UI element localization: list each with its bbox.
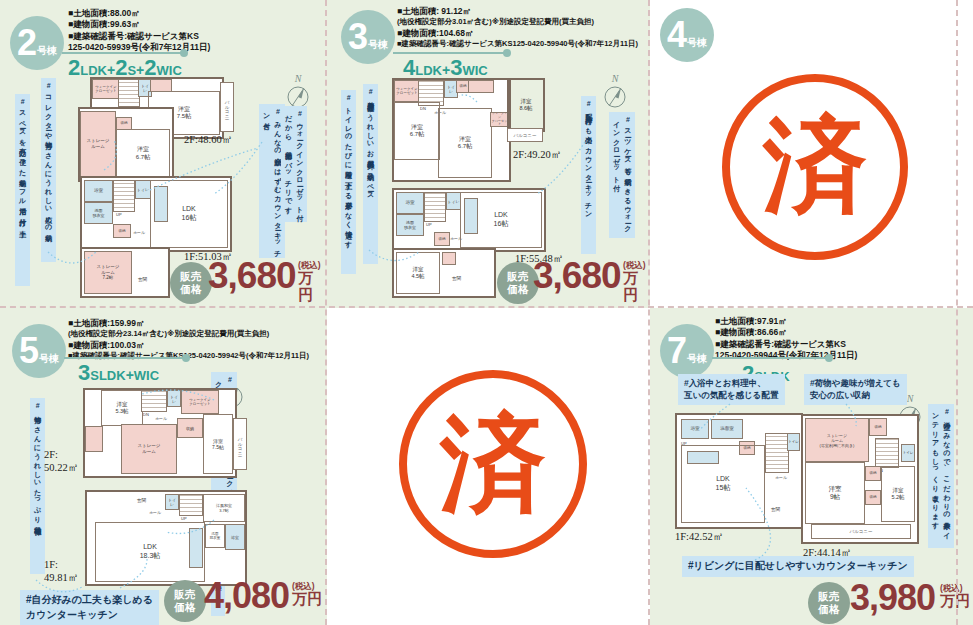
unit7-floorplan-1f: 浴室 洗面室 UP 収納 トイレ ホール LDK 15帖 玄関 (675, 413, 803, 529)
hashtag-note: #荷物や趣味が増えても 安心の広い収納 (804, 374, 907, 405)
kitchen-counter (464, 198, 478, 234)
unit3-specs: ■土地面積: 91.12㎡ (地役権設定部分3.01㎡含む)※別途設定登記費用(… (397, 6, 638, 49)
unit-number-suffix: 号棟 (368, 40, 388, 50)
layout-rooms: LDK (80, 63, 107, 78)
spec-line: ■建物面積:86.66㎡ (715, 327, 857, 338)
unit5-floorplan-type: 3SLDK+WIC (78, 362, 159, 384)
room-washroom: 洗面 脱衣室 (84, 202, 113, 224)
unit-number-suffix: 号棟 (687, 38, 707, 48)
room-storage: ストレージ ルーム (居室利用に不向き) (805, 418, 869, 462)
connector-dot (180, 49, 188, 57)
unit7-section: 7 号棟 ■土地面積:97.91㎡ ■建物面積:86.66㎡ ■建築確認番号:確… (650, 308, 973, 625)
unit2-floorplan-2f-lower: ストレージ ルーム 収納 洋室 6.7帖 (78, 107, 174, 182)
room-toilet: トイレ (165, 494, 179, 510)
hashtag-note: #入浴中とお料理中、 互いの気配を感じる配置 (678, 374, 785, 405)
room-bath: 浴室 (681, 419, 709, 439)
unit3-floorplan-2f: ウォークイン クローゼット トイレ 収納 DN ホール 洋室 6.7帖 洋室 6… (392, 78, 511, 182)
unit2-section: 2 号棟 ■土地面積:88.00㎡ ■建物面積:99.63㎡ ■建築確認番号:確… (0, 0, 327, 308)
spec-line: (地役権設定部分23.14㎡含む)※別途設定登記費用(買主負担) (68, 329, 309, 339)
stairs-up-label: UP (426, 222, 432, 227)
layout-rooms: SLDK (90, 368, 125, 383)
entrance-label: 玄関 (771, 507, 780, 513)
room-closet: 収納 (869, 418, 887, 436)
room-bedroom: 洋室 7.5帖 (203, 414, 233, 474)
unit5-number-badge: 5 号棟 (12, 324, 66, 378)
layout-rooms: LDK (415, 63, 442, 78)
room-closet: 収納 (865, 466, 881, 481)
hall-label: ホール (775, 475, 787, 480)
unit-number: 7 (667, 333, 687, 369)
room-bath: 浴室 (396, 192, 424, 214)
room-closet: 収納 (177, 418, 203, 438)
price-unit: 万円 (940, 593, 970, 610)
sold-stamp: 済 (399, 370, 587, 558)
hashtag-note: #物持ちさんにうれしいたっぷり収納確保 (30, 398, 45, 574)
room-toilet: トイレ (135, 180, 151, 199)
room-bedroom: 洋室 5.2帖 (881, 466, 915, 522)
sold-stamp-character: 済 (440, 393, 546, 536)
hashtag-note: #トイレのたびに階段を上下する必要がなく快適です (341, 90, 356, 274)
layout-rooms: S (127, 63, 136, 78)
badge-connector-line (62, 52, 182, 54)
compass-needle (602, 84, 628, 110)
spec-line: ■建物面積:99.63㎡ (68, 19, 210, 30)
unit3-floorplan-1f: 浴室 UP トイレ 洗面 脱衣室 収納 ホール LDK 16帖 (392, 188, 546, 252)
hashtag-note: #コレクターや物持ちさんにうれしい広めの収納 (41, 78, 56, 262)
hashtag-note: #整理整頓にうれしいお部屋以外の収納スペース (363, 84, 378, 264)
room-walkin-closet: ウォークイン クローゼット (181, 390, 219, 414)
price-tax-unit: (税込) 万円 (623, 261, 650, 303)
unit-number-suffix: 号棟 (687, 354, 707, 364)
entrance-label: 玄関 (137, 498, 146, 504)
unit3-section: 3 号棟 ■土地面積: 91.12㎡ (地役権設定部分3.01㎡含む)※別途設定… (327, 0, 650, 308)
entrance-label: 玄関 (138, 277, 147, 283)
room-toilet: トイレ (901, 444, 915, 462)
room-walkin-closet: ウォークイン クローゼット (92, 79, 120, 99)
room-toilet: トイレ (167, 390, 181, 407)
sale-price-badge: 販売 価格 (170, 262, 212, 304)
unit5-floorplan-2f: 洋室 5.3帖 DN トイレ ウォークイン クローゼット ホール ストレージ ル… (83, 388, 237, 478)
floor-area-label: 2F:49.20㎡ (513, 148, 561, 161)
room-bedroom: 洋室 6.7帖 (438, 108, 492, 178)
hashtag-note: #洋室のみなので、こだわりの家具やインテリアもしっくり収まります (928, 404, 954, 548)
price-unit: 万円 (292, 591, 322, 608)
kitchen-counter (189, 528, 203, 568)
balcony: バルコニー (507, 128, 543, 142)
price-tax-unit: (税込) 万円 (298, 261, 327, 303)
unit7-specs: ■土地面積:97.91㎡ ■建物面積:86.66㎡ ■建築確認番号:確認サービス… (715, 316, 857, 362)
room-walkin-closet (468, 80, 494, 93)
price-amount: 3,980 (850, 580, 935, 616)
spec-line: ■建物面積:100.03㎡ (68, 340, 309, 351)
unit-number: 2 (17, 25, 37, 61)
spec-line: ■土地面積: 91.12㎡ (397, 6, 638, 17)
floor-area-label: 2F: 50.22㎡ (44, 448, 78, 474)
unit3-floorplan-type: 4LDK+3WIC (403, 57, 488, 79)
plus-sign: + (442, 62, 450, 78)
floor-area-label: 2F:48.60㎡ (184, 133, 232, 146)
unit5-floorplan-1f: 玄関 トイレ UP ホール 洋風和室 3.7帖 LDK 18.3帖 洗面 脱衣室… (85, 490, 247, 586)
unit-number: 4 (667, 17, 687, 53)
connector-dot (182, 354, 190, 362)
badge-connector-line (712, 357, 827, 359)
floor-area-label: 1F: 49.81㎡ (44, 558, 78, 584)
unit2-number-badge: 2 号棟 (10, 16, 64, 70)
sale-price-badge: 販売 価格 (808, 582, 850, 624)
room-washroom: 洗面室 (711, 419, 743, 439)
compass-icon: N (601, 74, 629, 114)
unit2-floorplan-1f-lower: ストレージ ルーム 7.2帖 玄関 (80, 247, 170, 298)
spec-line: (地役権設定部分3.01㎡含む)※別途設定登記費用(買主負担) (397, 17, 638, 27)
room-toilet: トイレ (787, 433, 800, 451)
unit-number-suffix: 号棟 (37, 46, 57, 56)
hall-label: ホール (149, 510, 161, 515)
layout-count: 3 (78, 360, 90, 385)
stairs-down-label: DN (143, 412, 149, 417)
price-amount: 3,680 (533, 257, 621, 294)
stairs-up-label: UP (181, 516, 187, 521)
balcony: バルコニー (220, 82, 234, 132)
room-storage: ストレージ ルーム (80, 111, 116, 177)
floor-area-label: 2F:44.14㎡ (803, 546, 851, 559)
stairs-up-label: UP (116, 212, 122, 217)
badge-connector-line (64, 357, 184, 359)
room-closet: 収納 (113, 224, 131, 238)
balcony: バルコニー (811, 524, 911, 539)
sold-stamp-section: 済 (327, 308, 650, 625)
unit3-number-badge: 3 号棟 (341, 10, 395, 64)
stairs (113, 180, 135, 212)
unit-number: 5 (19, 333, 39, 369)
room-washroom: 洗面 脱衣室 (205, 524, 225, 548)
entrance-label: 玄関 (452, 276, 461, 282)
room-bedroom: 洋室 4.5帖 (396, 252, 440, 294)
spec-line: ■建築確認番号:確認サービス第KS (715, 339, 857, 350)
stairs (141, 390, 167, 412)
property-flyer: { "plus": "+", "compass_n": "N", "stamp"… (0, 0, 973, 625)
stairs (424, 192, 446, 222)
unit2-floorplan-type: 2LDK+2S+2WIC (68, 57, 182, 79)
connector-dot (503, 49, 511, 57)
stairs (765, 433, 789, 473)
spec-line: ■建物面積:104.68㎡ (397, 28, 638, 39)
hashtag-note: #ウォークインクローゼット付だから、収納力はバッチリです (281, 106, 307, 222)
room-bath: 浴室 (225, 524, 245, 550)
spec-line: ■建築確認番号:確認サービス第KS125-0420-59940号(令和7年12月… (397, 39, 638, 49)
unit-number: 3 (348, 19, 368, 55)
room-closet (85, 426, 103, 452)
layout-count: 4 (403, 55, 415, 80)
spec-line: ■建築確認番号:確認サービス第KS (68, 31, 210, 42)
kitchen-counter (154, 186, 168, 222)
floor-area-label: 1F:42.52㎡ (675, 530, 723, 543)
room-closet: 収納 (865, 490, 881, 505)
unit2-floorplan-1f: 浴室 洗面 脱衣室 UP トイレ 収納 ホール LDK 16帖 (80, 176, 232, 252)
room-washroom: 洗面 脱衣室 (396, 214, 424, 236)
hall-label: ホール (133, 230, 145, 235)
stairs (875, 438, 899, 468)
price-tax-unit: (税込) 万円 (292, 582, 322, 608)
layout-rooms: WIC (462, 63, 487, 78)
price-amount: 4,080 (204, 578, 289, 614)
unit5-section: 5 号棟 ■土地面積:159.99㎡ (地役権設定部分23.14㎡含む)※別途設… (0, 308, 327, 625)
room-storage: ストレージ ルーム (121, 424, 177, 474)
price-unit: 万円 (623, 270, 650, 303)
spec-line: ■土地面積:88.00㎡ (68, 8, 210, 19)
plus-sign: + (107, 62, 115, 78)
layout-rooms: WIC (134, 368, 159, 383)
balcony: バルコニー (233, 418, 247, 470)
layout-rooms: WIC (157, 63, 182, 78)
room-bedroom: 洋室 9帖 (805, 462, 865, 524)
unit2-specs: ■土地面積:88.00㎡ ■建物面積:99.63㎡ ■建築確認番号:確認サービス… (68, 8, 210, 54)
layout-count: 2 (68, 55, 80, 80)
connector-dot (825, 354, 833, 362)
compass-north-label: N (284, 74, 312, 84)
hashtag-note: #スーツケース等も収納できるウォークインクローゼット付 (609, 112, 635, 238)
room-bedroom: 洋室 5.3帖 (101, 390, 143, 426)
room-bedroom: 洋室 6.7帖 (116, 129, 170, 178)
plus-sign: + (126, 367, 134, 383)
stairs (179, 494, 203, 516)
price-unit: 万円 (298, 270, 327, 303)
room-service-room: 洋風和室 3.7帖 (203, 494, 245, 522)
stairs (118, 79, 140, 107)
unit-number-suffix: 号棟 (39, 354, 59, 364)
sold-stamp: 済 (722, 74, 908, 260)
unit4-number-badge: 4 号棟 (660, 8, 714, 62)
sale-price-badge: 販売 価格 (164, 580, 206, 622)
room-bedroom: 洋室 6.7帖 (394, 102, 440, 160)
price-tax-unit: (税込) 万円 (940, 584, 970, 610)
hashtag-note: #リビングに目配せしやすいカウンターキッチン (682, 556, 914, 577)
room-bedroom: 洋室 8.6帖 (507, 78, 545, 132)
spec-line: ■土地面積:159.99㎡ (68, 318, 309, 329)
unit7-floorplan-2f: ストレージ ルーム (居室利用に不向き) 収納 DN トイレ 洋室 9帖 収納 … (801, 414, 919, 544)
room-closet: 収納 (434, 232, 450, 246)
compass-north-label: N (601, 74, 629, 84)
kitchen-counter (687, 451, 719, 464)
room-bath: 浴室 (84, 180, 113, 202)
sold-stamp-character: 済 (763, 97, 867, 237)
badge-connector-line (393, 52, 505, 54)
unit3-floorplan-1f-lower: 洋室 4.5帖 玄関 (392, 248, 496, 298)
hashtag-note: #自分好みの工夫も楽しめる カウンターキッチン (20, 590, 159, 625)
room-walkin-closet: ウォークイン クローゼット (394, 80, 420, 102)
room-toilet: トイレ (446, 192, 461, 210)
unit7-number-badge: 7 号棟 (660, 324, 714, 378)
unit4-section: 4 号棟 済 (650, 0, 973, 308)
hashtag-note: #配膳・片付けも楽々のカウンターキッチン (581, 96, 596, 254)
spec-line: ■土地面積:97.91㎡ (715, 316, 857, 327)
layout-count: 3 (450, 55, 462, 80)
room-closet (442, 252, 456, 265)
hall-label: ホール (155, 416, 167, 421)
room-storage: ストレージ ルーム 7.2帖 (84, 251, 132, 294)
price-amount: 3,680 (208, 257, 296, 294)
hashtag-note: #スペースを有効に使った収納をフル活用で片付け上手 (15, 94, 30, 286)
